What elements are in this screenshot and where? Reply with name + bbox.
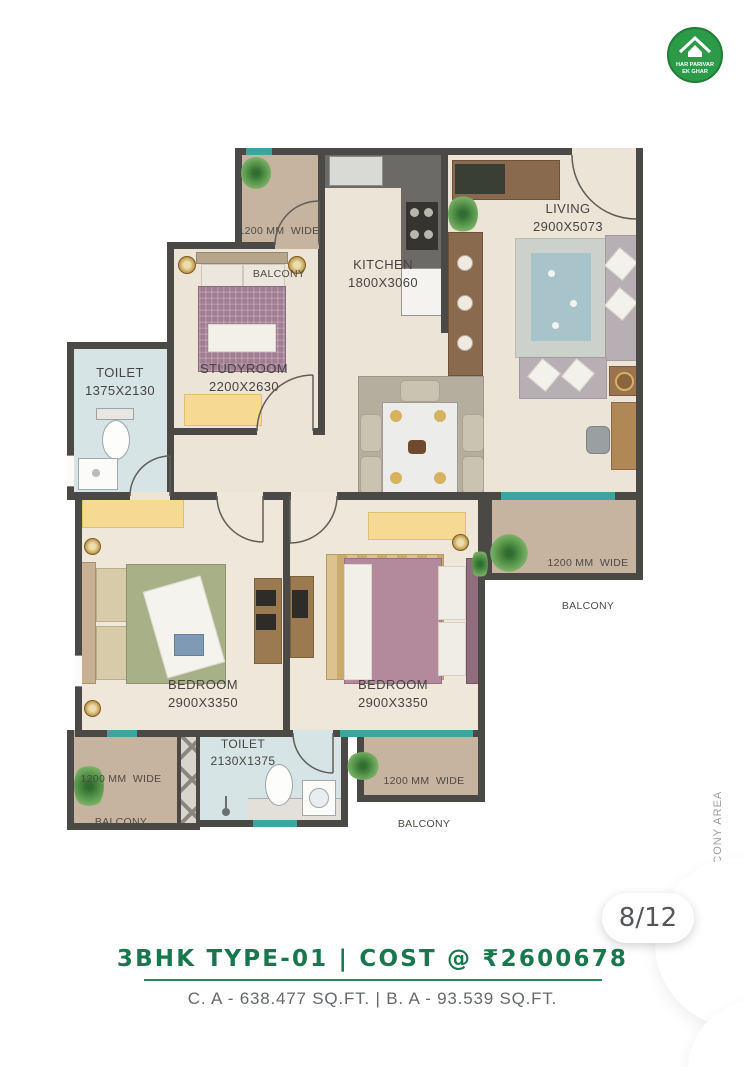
wall (341, 730, 348, 827)
title-divider (144, 979, 602, 981)
wall (75, 492, 82, 737)
room-dim: 2900X5073 (506, 218, 630, 236)
room-dim: 2130X1375 (201, 753, 285, 770)
footer: 3BHK TYPE-01 | COST @ ₹2600678 C. A - 63… (0, 946, 745, 1009)
dining-chair (462, 414, 484, 452)
plan-title: 3BHK TYPE-01 | COST @ ₹2600678 (0, 946, 745, 972)
room-dim: 2900X3350 (150, 694, 256, 712)
study-bed-sheet (208, 324, 276, 352)
dining-chair (400, 380, 440, 402)
dining-plate (434, 472, 446, 484)
plant (490, 534, 528, 572)
hob-burner (410, 230, 419, 239)
plant (472, 548, 488, 580)
studyroom-label: STUDYROOM 2200X2630 (177, 360, 311, 396)
wardrobe-left (82, 498, 184, 528)
door-gap (130, 492, 170, 500)
dresser-stool (292, 590, 308, 618)
window-strip (246, 148, 272, 155)
bed1-pillow (96, 568, 128, 622)
room-name: BEDROOM (150, 676, 256, 694)
service-shaft (177, 730, 200, 830)
balcony-line2: BALCONY (235, 267, 323, 281)
toilet-bottom-label: TOILET 2130X1375 (201, 736, 285, 770)
room-name: TOILET (69, 364, 171, 382)
room-dim: 1800X3060 (325, 274, 441, 292)
window-strip (340, 730, 473, 737)
dining-plate (434, 410, 446, 422)
wall (283, 492, 290, 737)
balcony-line2: BALCONY (378, 817, 470, 831)
bedroom-left-label: BEDROOM 2900X3350 (150, 676, 256, 712)
room-name: BEDROOM (340, 676, 446, 694)
wall-lamp (84, 538, 101, 555)
living-rug-center (531, 253, 591, 341)
area-subtitle: C. A - 638.477 SQ.FT. | B. A - 93.539 SQ… (0, 989, 745, 1009)
window (67, 455, 74, 487)
window-strip (253, 820, 297, 827)
room-name: KITCHEN (325, 256, 441, 274)
console-planter (455, 164, 505, 194)
bar-plate (457, 335, 473, 351)
logo-text-line1: HAR PARIVAR (676, 62, 714, 68)
toilet-top-label: TOILET 1375X2130 (69, 364, 171, 400)
kitchen-sink (329, 156, 383, 186)
wardrobe-right (368, 512, 466, 540)
wall-lamp (452, 534, 469, 551)
window (75, 655, 82, 687)
kitchen-label: KITCHEN 1800X3060 (325, 256, 441, 292)
bed1-pillow (96, 626, 128, 680)
balcony-bottom-right-label: 1200 MM WIDE BALCONY (378, 746, 470, 859)
side-table-lamp (615, 372, 634, 391)
dining-chair (360, 456, 382, 494)
plant (346, 752, 380, 780)
bar-plate (457, 255, 473, 271)
room-name: LIVING (506, 200, 630, 218)
room-name: STUDYROOM (177, 360, 311, 378)
bed2-sheet (344, 564, 372, 680)
washbasin-bowl (309, 788, 329, 808)
door-gap (293, 730, 333, 737)
bedroom-right-label: BEDROOM 2900X3350 (340, 676, 446, 712)
floor-plan: KITCHEN 1800X3060 LIVING 2900X5073 STUDY… (38, 120, 650, 848)
door-gap (257, 428, 313, 435)
developer-logo: HAR PARIVAR EK GHAR (666, 26, 724, 84)
room-dim: 1375X2130 (69, 382, 171, 400)
balcony-line1: 1200 MM WIDE (378, 774, 470, 788)
dining-chair (360, 414, 382, 452)
entry-door-gap (572, 148, 636, 155)
room-dim: 2900X3350 (340, 694, 446, 712)
plant (448, 194, 478, 234)
page-counter-badge: 8/12 (602, 893, 694, 943)
balcony-line1: 1200 MM WIDE (71, 772, 171, 786)
rug-dot (570, 300, 577, 307)
bed1-cushion (174, 634, 204, 656)
desk-chair (586, 426, 610, 454)
balcony-top-left-label: 1200 MM WIDE BALCONY (235, 196, 323, 309)
balcony-right-label: 1200 MM WIDE BALCONY (536, 528, 640, 641)
hob-burner (424, 208, 433, 217)
dining-plate (390, 472, 402, 484)
dining-centerpiece (408, 440, 426, 454)
door-gap (291, 492, 337, 500)
balcony-line2: BALCONY (71, 815, 171, 829)
wall (636, 148, 643, 580)
bed1-headboard (80, 562, 96, 684)
wall (67, 342, 173, 349)
bed2-pillow (438, 566, 466, 620)
door-gap (217, 492, 263, 500)
hob-burner (424, 230, 433, 239)
dining-plate (390, 410, 402, 422)
study-mat (184, 394, 262, 426)
window-strip (501, 492, 615, 500)
room-name: TOILET (201, 736, 285, 753)
shower-pole (225, 796, 227, 810)
wall-lamp (178, 256, 196, 274)
balcony-line1: 1200 MM WIDE (235, 224, 323, 238)
bed2-pillow (438, 622, 466, 676)
wc-bowl (265, 764, 293, 806)
logo-text-line2: EK GHAR (682, 69, 708, 75)
hob-burner (410, 208, 419, 217)
balcony-line2: BALCONY (536, 599, 640, 613)
wall (478, 492, 485, 802)
plant (241, 156, 271, 190)
balcony-bottom-left-label: 1200 MM WIDE BALCONY (71, 744, 171, 857)
rug-dot (548, 270, 555, 277)
dresser-stool (256, 614, 276, 630)
wc-bowl (102, 420, 130, 460)
wc-tank (96, 408, 134, 420)
rug-dot (552, 322, 559, 329)
wall-lamp (84, 700, 101, 717)
bar-plate (457, 295, 473, 311)
floor-plan-page: HAR PARIVAR EK GHAR (0, 0, 745, 1067)
dining-chair (462, 456, 484, 494)
window-strip (107, 730, 137, 737)
shower-drain (92, 469, 100, 477)
living-label: LIVING 2900X5073 (506, 200, 630, 236)
wall (441, 148, 448, 333)
room-dim: 2200X2630 (177, 378, 311, 396)
dresser-stool (256, 590, 276, 606)
balcony-line1: 1200 MM WIDE (536, 556, 640, 570)
